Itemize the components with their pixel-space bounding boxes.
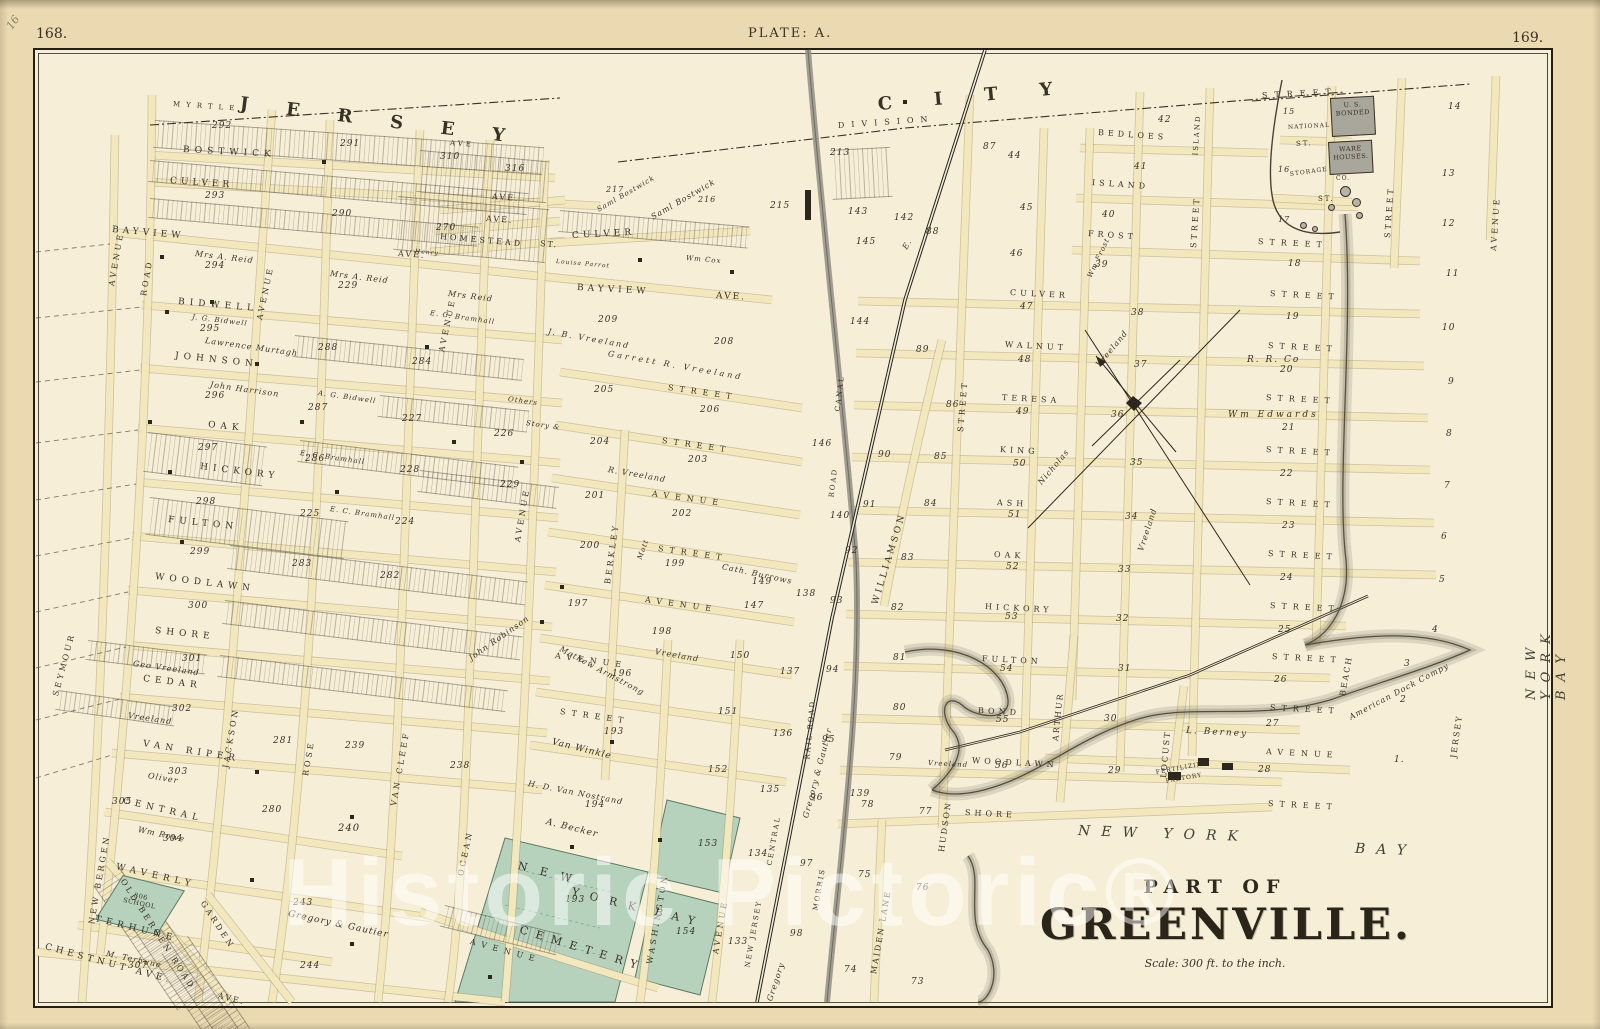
map-label-48-257: 48 <box>1018 356 1031 365</box>
building-footprint <box>488 975 492 979</box>
map-label-17-308: 17 <box>1278 216 1290 224</box>
map-label-st-85: ST. <box>1296 140 1313 148</box>
map-label-94-234: 94 <box>826 666 839 675</box>
map-label-28-291: 28 <box>1258 766 1271 775</box>
storage-tank <box>1300 222 1307 229</box>
map-label-77-248: 77 <box>919 808 932 817</box>
map-label-139-316: 139 <box>850 790 870 799</box>
map-label-288-138: 288 <box>318 344 338 353</box>
map-label-50-259: 50 <box>1013 460 1026 469</box>
map-label-st-88: ST. <box>1318 196 1335 203</box>
map-label-200-191: 200 <box>580 542 600 551</box>
map-label-75-250: 75 <box>858 871 871 880</box>
map-label-93-233: 93 <box>830 597 843 606</box>
map-label-198-206: 198 <box>652 628 672 637</box>
map-label-9-297: 9 <box>1448 378 1455 387</box>
street-ash: ASH <box>997 499 1028 509</box>
map-label-203-187: 203 <box>688 456 708 465</box>
building-footprint <box>730 270 734 274</box>
map-label-36-273: 36 <box>1111 411 1124 420</box>
map-label-229-146: 229 <box>500 481 520 490</box>
map-label-53-262: 53 <box>1005 613 1018 622</box>
map-label-208-183: 208 <box>714 338 734 347</box>
map-label-5-301: 5 <box>1439 576 1446 585</box>
map-label-143-225: 143 <box>848 208 868 217</box>
map-label-135-202: 135 <box>760 786 780 795</box>
map-label-16-307: 16 <box>1278 166 1290 174</box>
map-label-138-196: 138 <box>796 590 816 599</box>
map-label-7-299: 7 <box>1444 482 1451 491</box>
map-label-133-222: 133 <box>728 938 748 947</box>
map-title: GREENVILLE. <box>1040 900 1390 950</box>
map-label-283-151: 283 <box>292 560 312 569</box>
map-label-193-218: 193 <box>565 896 585 905</box>
map-label-31-278: 31 <box>1118 665 1131 674</box>
map-label-19-282: 19 <box>1286 313 1299 322</box>
map-label-225-148: 225 <box>300 510 320 519</box>
map-label-290-176: 290 <box>332 210 352 219</box>
map-label-11-295: 11 <box>1446 270 1459 279</box>
building-footprint <box>255 770 259 774</box>
building-footprint <box>452 440 456 444</box>
map-label-140-314: 140 <box>830 512 850 521</box>
map-label-281-153: 281 <box>273 737 293 746</box>
map-label-151-199: 151 <box>718 708 738 717</box>
map-label-33-276: 33 <box>1118 566 1131 575</box>
map-label-287-140: 287 <box>308 404 328 413</box>
building-footprint <box>322 160 326 164</box>
map-label-4-302: 4 <box>1432 626 1439 635</box>
map-label-240-170: 240 <box>338 824 360 834</box>
map-label-6-300: 6 <box>1441 533 1448 542</box>
map-label-229-125: 229 <box>338 282 358 291</box>
map-label-204-186: 204 <box>590 438 610 447</box>
us-bonded-warehouse: U. S.BONDED <box>1330 96 1376 137</box>
map-label-47-256: 47 <box>1020 303 1033 312</box>
atlas-page: 306SCHOOL U. S.BONDED WAREHOUSES. JERSEY… <box>0 0 1600 1029</box>
building-footprint <box>250 878 254 882</box>
map-label-80-245: 80 <box>893 704 906 713</box>
map-label-54-263: 54 <box>1000 665 1013 674</box>
storage-tank <box>1352 198 1361 207</box>
owner-wm-edwards: Wm Edwards <box>1228 411 1319 420</box>
map-label-10-296: 10 <box>1442 324 1455 333</box>
map-label-46-255: 46 <box>1010 250 1023 259</box>
map-label-74-251: 74 <box>844 966 857 975</box>
warehouses-building: WAREHOUSES. <box>1328 140 1374 175</box>
map-label-20-283: 20 <box>1280 366 1293 375</box>
bay-label-vertical: NEW YORK BAY <box>1524 624 1569 700</box>
map-label-40-269: 40 <box>1102 211 1115 220</box>
map-label-co-87: CO. <box>1336 176 1350 182</box>
map-label-56-266: 56 <box>995 762 1008 771</box>
map-label-1-305: 1. <box>1394 756 1405 765</box>
storage-tank <box>1340 186 1351 197</box>
map-label-137-198: 137 <box>780 668 800 677</box>
map-label-199-192: 199 <box>665 560 685 569</box>
map-label-st-105: ST. <box>540 240 559 250</box>
map-scale: Scale: 300 ft. to the inch. <box>1100 957 1330 970</box>
storage-tank <box>1312 226 1318 232</box>
map-label-295-129: 295 <box>200 325 220 334</box>
building-footprint <box>560 585 564 589</box>
building-footprint <box>658 838 662 842</box>
map-label-206-185: 206 <box>700 406 720 415</box>
map-label-82-243: 82 <box>891 604 904 613</box>
map-label-55-264: 55 <box>996 716 1009 725</box>
map-label-38-271: 38 <box>1131 309 1144 318</box>
map-label-145-312: 145 <box>856 238 876 247</box>
map-label-201-189: 201 <box>585 492 605 501</box>
building-footprint <box>1222 763 1233 770</box>
map-label-2-304: 2 <box>1400 696 1407 705</box>
map-label-96-236: 96 <box>810 794 823 803</box>
map-label-21-284: 21 <box>1282 424 1295 433</box>
map-label-42-267: 42 <box>1158 116 1171 125</box>
map-label-217-98: 217 <box>606 186 624 194</box>
map-label-196-204: 196 <box>612 670 632 679</box>
map-label-270-179: 270 <box>436 224 456 233</box>
map-label-197-205: 197 <box>568 600 588 609</box>
map-label-27-290: 27 <box>1266 720 1279 729</box>
map-label-37-272: 37 <box>1134 361 1147 370</box>
building-footprint <box>160 255 164 259</box>
map-label-202-190: 202 <box>672 510 692 519</box>
map-label-216-100: 216 <box>698 196 716 204</box>
map-label-153-219: 153 <box>698 840 718 849</box>
map-label-79-246: 79 <box>889 754 902 763</box>
map-label-224-149: 224 <box>395 518 415 527</box>
map-label-45-254: 45 <box>1020 204 1033 213</box>
map-label-23-286: 23 <box>1282 522 1295 531</box>
map-label-194-212: 194 <box>585 801 605 810</box>
map-label-205-184: 205 <box>594 386 614 395</box>
map-label-86-239: 86 <box>946 401 959 410</box>
map-label-300-155: 300 <box>188 602 208 611</box>
map-label-39-270: 39 <box>1095 261 1108 270</box>
map-label-95-235: 95 <box>822 736 835 745</box>
map-label-49-258: 49 <box>1016 408 1029 417</box>
page-number-right: 169. <box>1512 30 1543 46</box>
map-label-134-221: 134 <box>748 850 768 859</box>
map-label-41-268: 41 <box>1134 163 1147 172</box>
map-label-25-288: 25 <box>1278 626 1291 635</box>
map-label-152-201: 152 <box>708 766 728 775</box>
storage-tank <box>1356 212 1363 219</box>
map-label-34-275: 34 <box>1125 513 1138 522</box>
map-label-136-200: 136 <box>773 730 793 739</box>
map-label-142-226: 142 <box>894 214 914 223</box>
map-label-297-143: 297 <box>198 444 218 453</box>
street-oak-east: OAK <box>994 551 1025 561</box>
map-label-18-281: 18 <box>1288 260 1301 269</box>
map-label-150-197: 150 <box>730 652 750 661</box>
map-label-84-241: 84 <box>924 500 937 509</box>
map-label-32-277: 32 <box>1116 615 1129 624</box>
building-footprint <box>168 470 172 474</box>
map-label-305-160: 305 <box>112 798 132 807</box>
map-label-310-177: 310 <box>440 153 460 162</box>
map-label-83-242: 83 <box>901 554 914 563</box>
map-label-243-168: 243 <box>293 899 313 908</box>
map-label-26-289: 26 <box>1274 676 1287 685</box>
building-footprint <box>610 740 614 744</box>
building-footprint <box>425 345 429 349</box>
map-label-92-232: 92 <box>845 547 858 556</box>
building-footprint <box>165 310 169 314</box>
building-footprint <box>335 490 339 494</box>
map-label-238-172: 238 <box>450 762 470 771</box>
map-label-85-240: 85 <box>934 453 947 462</box>
map-label-88-227: 88 <box>926 228 939 237</box>
building-footprint <box>350 815 354 819</box>
map-label-22-285: 22 <box>1280 470 1293 479</box>
map-label-8-298: 8 <box>1446 430 1453 439</box>
map-label-284-139: 284 <box>412 358 432 367</box>
building-footprint <box>148 420 152 424</box>
map-label-13-293: 13 <box>1442 170 1455 179</box>
map-label-3-303: 3 <box>1404 660 1411 669</box>
owner-rr-co: R. R. Co <box>1247 356 1300 365</box>
map-label-193-210: 193 <box>604 728 624 737</box>
map-label-51-260: 51 <box>1008 511 1021 520</box>
map-label-226-142: 226 <box>494 430 514 439</box>
map-label-299-150: 299 <box>190 548 210 557</box>
map-label-52-261: 52 <box>1006 563 1019 572</box>
map-label-30-279: 30 <box>1104 715 1117 724</box>
map-label-302-157: 302 <box>172 705 192 714</box>
building-footprint <box>180 540 184 544</box>
map-label-44-253: 44 <box>1008 152 1021 161</box>
map-label-280-154: 280 <box>262 806 282 815</box>
map-label-292-173: 292 <box>212 122 232 131</box>
map-label-298-147: 298 <box>196 498 216 507</box>
map-label-81-244: 81 <box>893 654 906 663</box>
map-label-146-313: 146 <box>812 440 832 449</box>
building-footprint <box>520 460 524 464</box>
map-label-97-237: 97 <box>800 860 813 869</box>
map-label-90-230: 90 <box>878 451 891 460</box>
map-label-76-249: 76 <box>916 884 929 893</box>
map-label-215-224: 215 <box>770 202 790 211</box>
bay-label-bottom-right: BAY <box>1355 841 1418 859</box>
map-label-14-292: 14 <box>1448 103 1461 112</box>
building-footprint <box>638 258 642 262</box>
map-label-12-294: 12 <box>1442 220 1455 229</box>
map-label-296-132: 296 <box>205 392 225 401</box>
map-label-91-231: 91 <box>863 501 876 510</box>
map-label-228-145: 228 <box>400 466 420 475</box>
map-label-147-315: 147 <box>744 602 764 611</box>
map-label-301-156: 301 <box>182 655 202 664</box>
map-label-ave-112: AVE. <box>716 292 746 303</box>
map-label-286-144: 286 <box>305 455 325 464</box>
map-label-144-311: 144 <box>850 318 870 327</box>
map-label-227-141: 227 <box>402 415 422 424</box>
map-label-87-228: 87 <box>983 143 996 152</box>
map-label-78-247: 78 <box>861 801 874 810</box>
map-label-209-181: 209 <box>598 316 618 325</box>
map-label-213-223: 213 <box>830 149 850 158</box>
map-label-282-152: 282 <box>380 572 400 581</box>
building-footprint <box>300 420 304 424</box>
map-label-294-123: 294 <box>205 262 225 271</box>
map-label-291-174: 291 <box>340 140 360 149</box>
page-number-left: 168. <box>36 26 67 42</box>
map-label-89-229: 89 <box>916 346 929 355</box>
map-label-98-238: 98 <box>790 930 803 939</box>
building-footprint <box>570 845 574 849</box>
storage-tank <box>1328 204 1335 211</box>
map-label-24-287: 24 <box>1280 574 1293 583</box>
map-label-154-220: 154 <box>676 928 696 937</box>
map-label-29-280: 29 <box>1108 767 1121 776</box>
building-footprint <box>350 942 354 946</box>
map-label-316-178: 316 <box>505 165 525 174</box>
map-label-244-169: 244 <box>300 962 320 971</box>
map-label-149-195: 149 <box>752 578 772 587</box>
map-label-239-171: 239 <box>345 742 365 751</box>
map-label-293-175: 293 <box>205 192 225 201</box>
map-label-73-252: 73 <box>911 978 924 987</box>
map-label-35-274: 35 <box>1130 459 1143 468</box>
map-label-15-306: 15 <box>1283 108 1295 116</box>
map-title-part-of: PART OF <box>1130 876 1300 898</box>
building-footprint <box>540 620 544 624</box>
plate-title: PLATE: A. <box>748 26 832 41</box>
building-footprint <box>805 190 811 220</box>
